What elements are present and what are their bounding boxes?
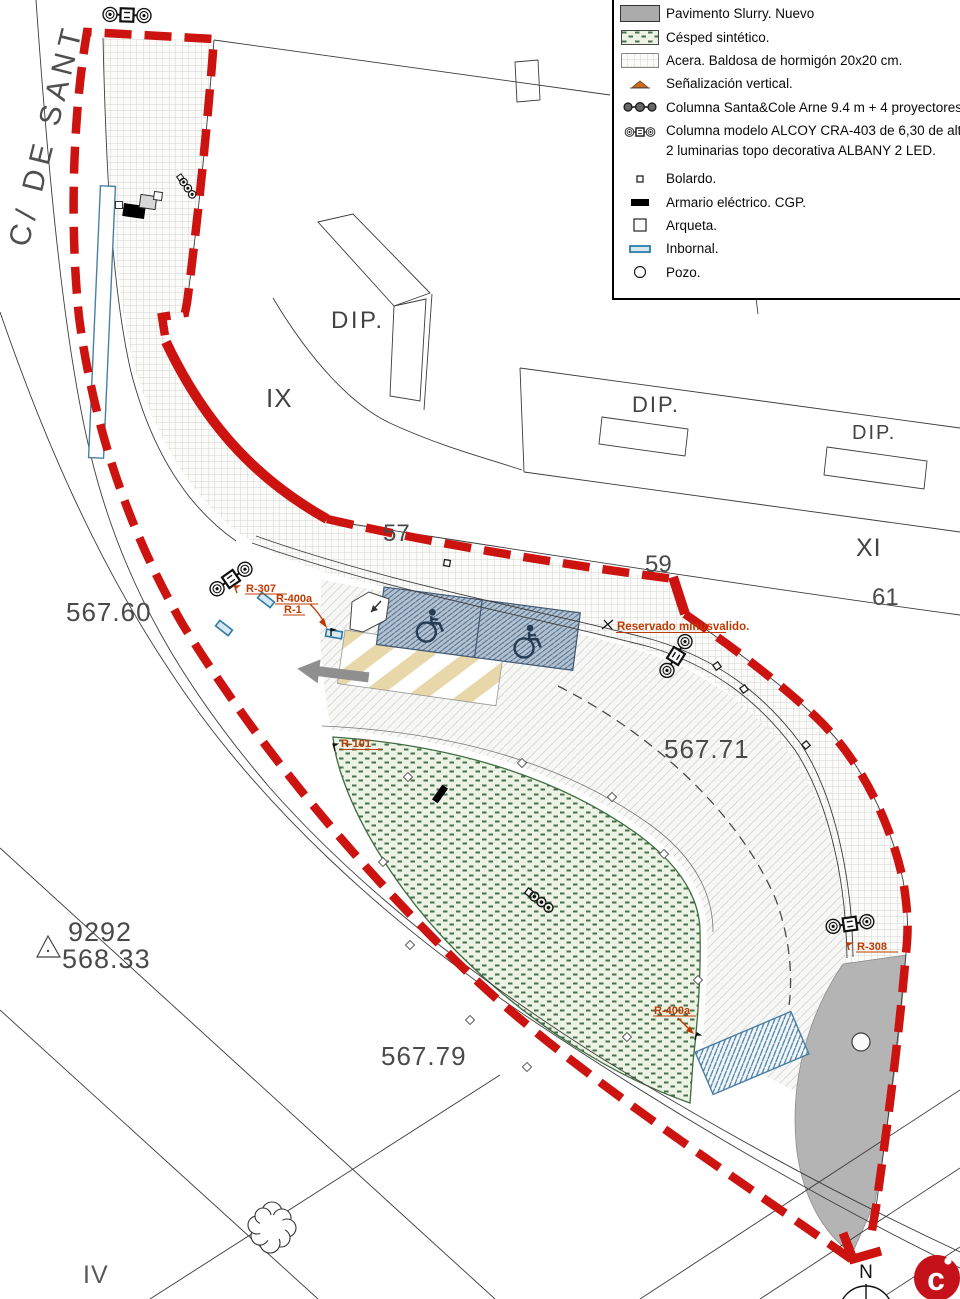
arqueta-symbol <box>116 202 123 209</box>
parcel-number-57: 57 <box>383 520 410 547</box>
inbornal-icon <box>628 244 652 254</box>
column-santacole-icon <box>620 100 660 114</box>
legend-item-label: Pozo. <box>666 265 701 280</box>
benchmark-id-label: 9292 <box>68 917 132 947</box>
grass-swatch <box>621 30 659 45</box>
legend-item-label: Armario eléctrico. CGP. <box>666 195 806 210</box>
legend-item-label: Pavimento Slurry. Nuevo <box>666 6 814 21</box>
north-label: N <box>859 1262 873 1283</box>
block-label-xi: XI <box>856 534 882 562</box>
legend-item: Columna modelo ALCOY CRA-403 de 6,30 de … <box>614 119 960 167</box>
bolardo-symbol <box>444 560 451 567</box>
sign-label-r1: R-1 <box>284 604 302 616</box>
legend-item-label: Arqueta. <box>666 218 717 233</box>
parcel-number-61: 61 <box>872 584 899 611</box>
vertical-sign-icon <box>628 78 652 90</box>
brand-logo: c <box>914 1255 960 1299</box>
building-label-dip: DIP. <box>632 392 680 417</box>
arqueta-symbol <box>153 191 162 200</box>
logo-letter: c <box>927 1261 945 1297</box>
block-label-iv: IV <box>83 1261 109 1289</box>
armario-icon <box>631 199 649 206</box>
sign-label-r101: R-101 <box>341 738 371 750</box>
legend-item: Arqueta. <box>614 214 960 237</box>
arqueta-icon <box>632 217 648 233</box>
block-label-ix: IX <box>266 383 293 413</box>
elevation-label: 567.79 <box>381 1041 467 1071</box>
legend-item: Armario eléctrico. CGP. <box>614 190 960 213</box>
sign-label-reservado: Reservado minusvalido. <box>617 621 749 633</box>
legend-item-label: Señalización vertical. <box>666 76 793 91</box>
legend-item-label: Césped sintético. <box>666 30 770 45</box>
legend-item: Bolardo. <box>614 167 960 190</box>
elevation-label: 567.71 <box>664 734 750 764</box>
pozo-symbol <box>852 1033 870 1051</box>
site-plan-page: N c R-307 R-400a R-1 Reservado minusvali… <box>0 0 960 1299</box>
legend-item-label: Bolardo. <box>666 171 716 186</box>
legend-item: Columna Santa&Cole Arne 9.4 m + 4 proyec… <box>614 96 960 119</box>
sign-label-r307: R-307 <box>246 583 276 595</box>
sign-label-r400a-b: R-400a <box>654 1005 691 1017</box>
benchmark-elevation-label: 568.33 <box>62 944 151 974</box>
legend-item-label: Acera. Baldosa de hormigón 20x20 cm. <box>666 53 902 68</box>
column-alcoy-icon <box>616 123 664 141</box>
legend-item: Acera. Baldosa de hormigón 20x20 cm. <box>614 49 960 72</box>
legend-item: Pavimento Slurry. Nuevo <box>614 2 960 25</box>
building-label-dip: DIP. <box>852 422 896 444</box>
legend-item-label: Columna modelo ALCOY CRA-403 de 6,30 de … <box>666 121 960 141</box>
elevation-label: 567.60 <box>66 597 152 627</box>
legend-item: Señalización vertical. <box>614 72 960 95</box>
legend: Pavimento Slurry. Nuevo Césped sintético… <box>612 0 960 300</box>
legend-item: Césped sintético. <box>614 25 960 48</box>
legend-item: Pozo. <box>614 261 960 284</box>
legend-item-label: Columna Santa&Cole Arne 9.4 m + 4 proyec… <box>666 100 960 115</box>
building-label-dip: DIP. <box>331 307 385 334</box>
sidewalk-swatch <box>621 53 659 68</box>
parcel-number-59: 59 <box>645 551 672 578</box>
pozo-icon <box>632 264 648 280</box>
legend-item-label: 2 luminarias topo decorativa ALBANY 2 LE… <box>666 141 960 161</box>
legend-item-label: Inbornal. <box>666 241 719 256</box>
slurry-swatch <box>620 5 660 22</box>
legend-item: Inbornal. <box>614 237 960 260</box>
sign-label-r308: R-308 <box>857 941 887 953</box>
bolardo-icon <box>634 173 646 185</box>
